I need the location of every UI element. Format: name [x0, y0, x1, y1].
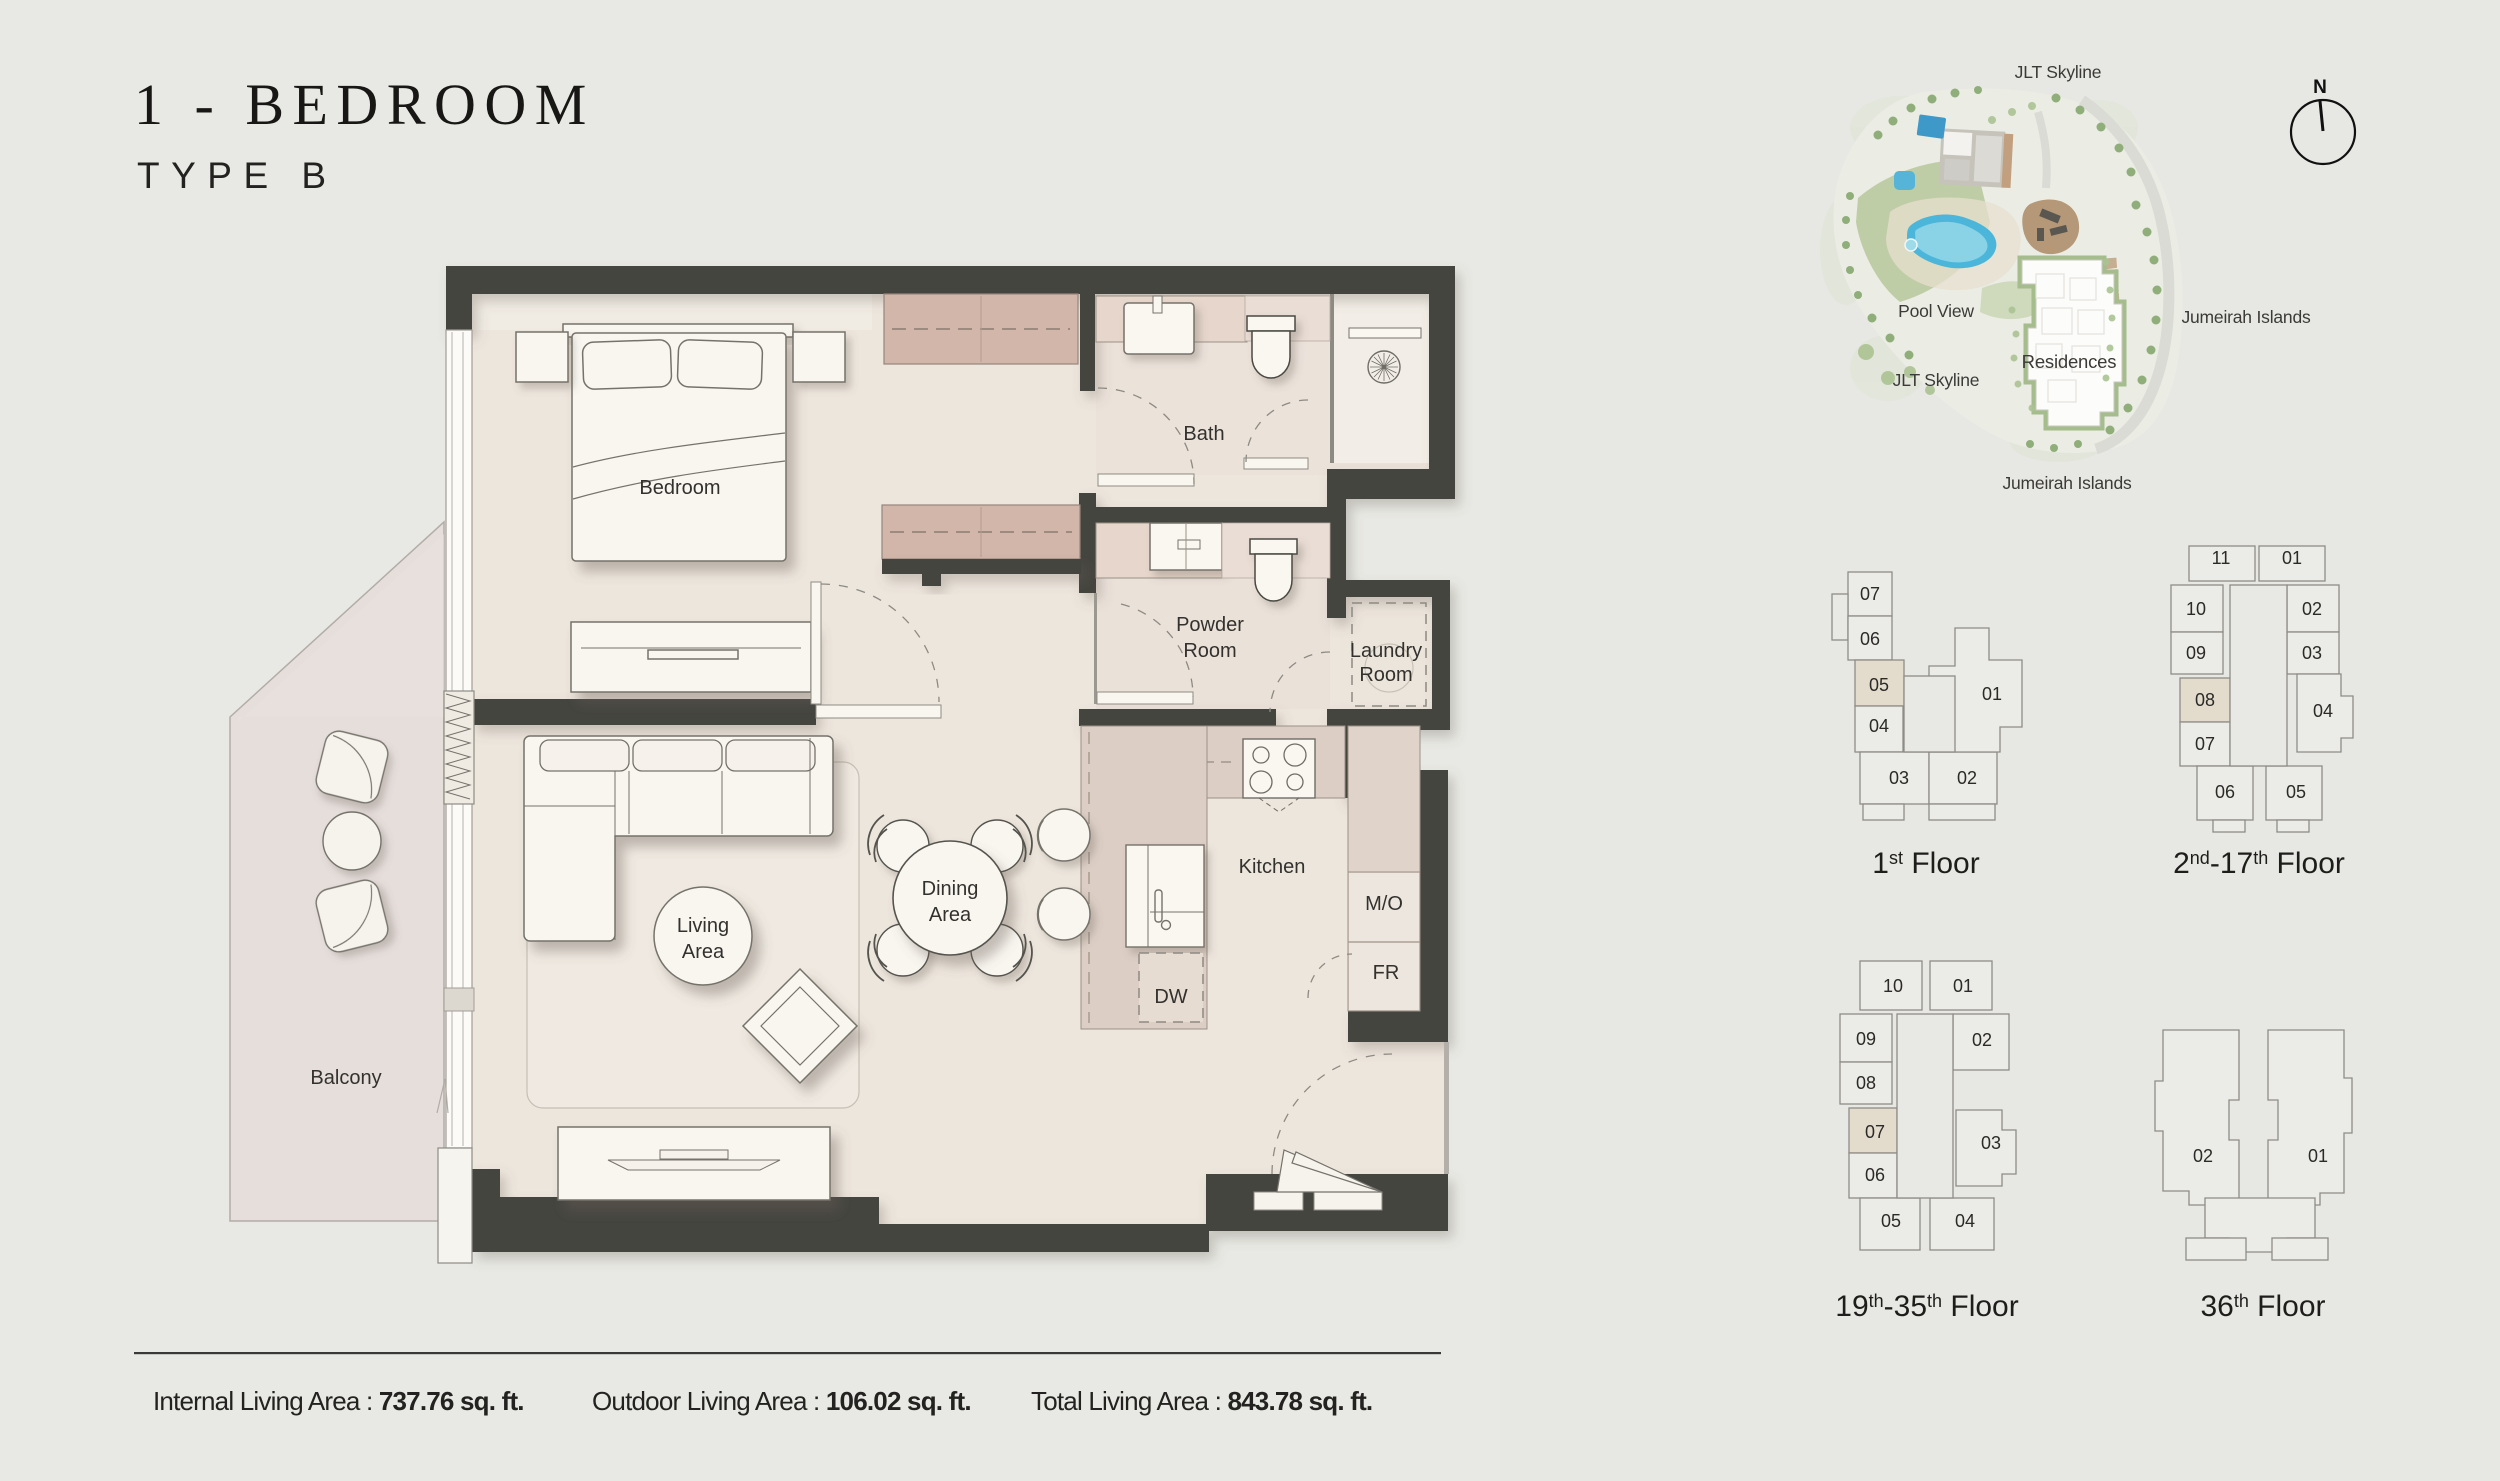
svg-text:1 - BEDROOM: 1 - BEDROOM	[134, 72, 595, 137]
svg-text:Jumeirah Islands: Jumeirah Islands	[2002, 473, 2132, 493]
svg-text:FR: FR	[1373, 962, 1400, 984]
svg-text:09: 09	[1856, 1029, 1876, 1049]
svg-text:08: 08	[2195, 690, 2215, 710]
svg-text:Bath: Bath	[1183, 423, 1224, 445]
svg-text:04: 04	[1955, 1211, 1975, 1231]
svg-text:Bedroom: Bedroom	[639, 477, 720, 499]
svg-text:09: 09	[2186, 643, 2206, 663]
svg-text:03: 03	[1981, 1133, 2001, 1153]
svg-text:Pool View: Pool View	[1898, 301, 1974, 321]
svg-text:02: 02	[1972, 1030, 1992, 1050]
svg-text:02: 02	[1957, 768, 1977, 788]
svg-text:1st Floor: 1st Floor	[1872, 847, 1979, 880]
svg-text:04: 04	[2313, 701, 2333, 721]
svg-text:02: 02	[2302, 599, 2322, 619]
svg-text:11: 11	[2212, 548, 2231, 568]
svg-text:01: 01	[2308, 1146, 2328, 1166]
svg-text:02: 02	[2193, 1146, 2213, 1166]
svg-text:JLT Skyline: JLT Skyline	[1893, 370, 1980, 390]
svg-text:07: 07	[1865, 1122, 1885, 1142]
svg-text:01: 01	[1953, 976, 1973, 996]
svg-text:19th-35th Floor: 19th-35th Floor	[1835, 1290, 2018, 1323]
svg-text:07: 07	[2195, 734, 2215, 754]
svg-text:01: 01	[1982, 684, 2002, 704]
svg-text:06: 06	[1860, 629, 1880, 649]
svg-text:05: 05	[1881, 1211, 1901, 1231]
svg-text:Jumeirah Islands: Jumeirah Islands	[2181, 307, 2311, 327]
svg-text:Kitchen: Kitchen	[1239, 856, 1306, 878]
svg-text:07: 07	[1860, 584, 1880, 604]
svg-text:Outdoor Living Area : 106.02 s: Outdoor Living Area : 106.02 sq. ft.	[592, 1386, 971, 1416]
svg-text:06: 06	[1865, 1165, 1885, 1185]
svg-text:36th Floor: 36th Floor	[2200, 1290, 2325, 1323]
svg-text:Internal Living Area : 737.76: Internal Living Area : 737.76 sq. ft.	[153, 1386, 524, 1416]
svg-text:10: 10	[2186, 599, 2206, 619]
svg-text:01: 01	[2282, 548, 2302, 568]
svg-text:05: 05	[1869, 675, 1889, 695]
svg-text:06: 06	[2215, 782, 2235, 802]
svg-text:N: N	[2313, 77, 2327, 98]
svg-text:DW: DW	[1154, 986, 1187, 1008]
svg-text:10: 10	[1883, 976, 1903, 996]
svg-text:Balcony: Balcony	[310, 1067, 381, 1089]
svg-text:M/O: M/O	[1365, 893, 1403, 915]
svg-text:JLT Skyline: JLT Skyline	[2015, 62, 2102, 82]
svg-text:Total Living Area : 843.78 sq.: Total Living Area : 843.78 sq. ft.	[1031, 1386, 1372, 1416]
svg-text:08: 08	[1856, 1073, 1876, 1093]
svg-text:03: 03	[2302, 643, 2322, 663]
svg-text:05: 05	[2286, 782, 2306, 802]
svg-text:03: 03	[1889, 768, 1909, 788]
svg-text:Residences: Residences	[2022, 351, 2117, 372]
svg-text:04: 04	[1869, 716, 1889, 736]
svg-text:TYPE B: TYPE B	[137, 155, 338, 196]
